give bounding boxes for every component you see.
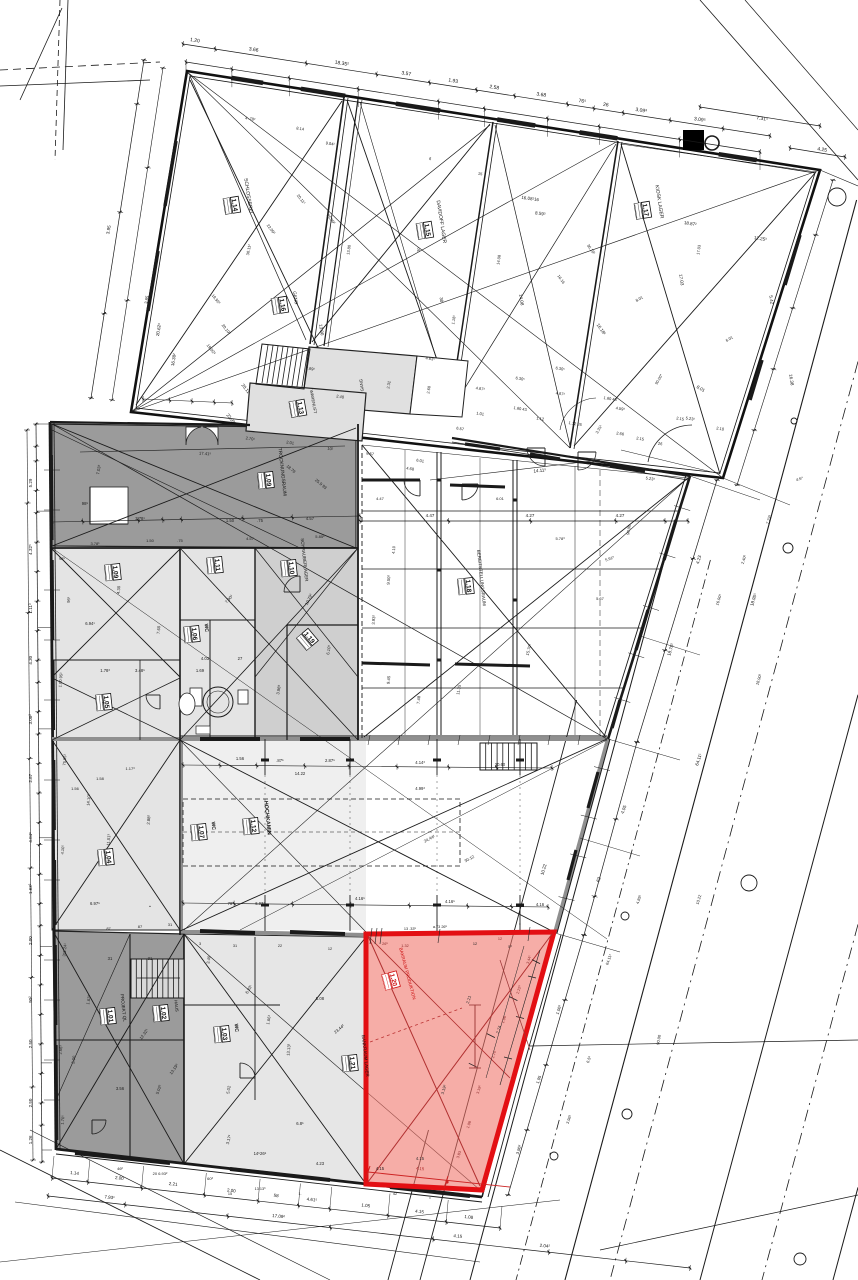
svg-text:7.48: 7.48 (416, 695, 422, 704)
svg-text:1.56: 1.56 (236, 756, 245, 761)
svg-text:9.45: 9.45 (386, 675, 392, 684)
svg-text:60³: 60³ (207, 1176, 213, 1181)
svg-text:WC: WC (210, 821, 217, 830)
svg-text:14.22: 14.22 (295, 771, 306, 776)
svg-text:.75: .75 (177, 538, 183, 543)
svg-text:7.60: 7.60 (156, 625, 162, 634)
svg-text:4.32⁵: 4.32⁵ (28, 544, 33, 555)
svg-text:1.32: 1.32 (401, 944, 408, 948)
svg-text:5.67: 5.67 (596, 596, 605, 601)
svg-text:15: 15 (228, 1192, 232, 1196)
svg-text:2.00: 2.00 (115, 1175, 125, 1181)
svg-text:1.14: 1.14 (70, 1170, 80, 1176)
svg-text:4.23: 4.23 (316, 1161, 325, 1166)
svg-text:2.50: 2.50 (28, 1098, 33, 1107)
svg-text:4.16: 4.16 (536, 902, 545, 907)
svg-text:5.29: 5.29 (28, 478, 33, 487)
svg-text:78: 78 (228, 901, 233, 906)
svg-text:2.21: 2.21 (169, 1181, 179, 1187)
svg-text:4.30: 4.30 (28, 655, 33, 664)
svg-text:3.78¹: 3.78¹ (135, 516, 145, 521)
svg-text:13 .33⁵: 13 .33⁵ (404, 927, 417, 931)
svg-text:1.08: 1.08 (464, 1214, 474, 1220)
svg-text:.87: .87 (105, 926, 111, 931)
svg-text:87: 87 (138, 924, 143, 929)
svg-text:4.03: 4.03 (201, 656, 210, 661)
svg-text:1.50: 1.50 (146, 538, 155, 543)
svg-text:3.93²: 3.93² (371, 614, 377, 625)
svg-text:12: 12 (473, 942, 477, 946)
svg-text:4.57: 4.57 (246, 536, 255, 541)
svg-text:4.16⁵: 4.16⁵ (445, 899, 455, 904)
svg-text:31: 31 (168, 922, 173, 927)
svg-text:13.13³: 13.13³ (255, 1187, 267, 1191)
svg-text:98⁵: 98⁵ (59, 556, 65, 561)
svg-text:1.69: 1.69 (196, 668, 205, 673)
svg-text:12: 12 (328, 947, 332, 951)
svg-text:2.87: 2.87 (28, 773, 33, 782)
svg-text:4.15: 4.15 (453, 1233, 463, 1239)
svg-text:3: 3 (199, 942, 201, 946)
svg-text:4.99³: 4.99³ (415, 786, 425, 791)
svg-text:4.15: 4.15 (415, 1209, 425, 1215)
svg-text:1.11³: 1.11³ (28, 603, 33, 613)
svg-text:3.78¹: 3.78¹ (90, 541, 100, 546)
svg-text:20.60: 20.60 (495, 762, 506, 767)
svg-text:31: 31 (108, 956, 113, 961)
svg-text:a.73 26⁵: a.73 26⁵ (433, 925, 448, 929)
svg-text:2.88²: 2.88² (146, 814, 152, 825)
svg-text:4.15: 4.15 (376, 1166, 385, 1171)
svg-text:4.27: 4.27 (526, 513, 535, 518)
svg-text:2.00: 2.00 (28, 936, 33, 945)
svg-text:4.30: 4.30 (116, 585, 122, 594)
svg-text:.87⁵: .87⁵ (276, 758, 284, 763)
svg-text:2.50: 2.50 (28, 1039, 33, 1048)
svg-text:76⁵: 76⁵ (578, 98, 586, 105)
svg-text:4.15: 4.15 (416, 1156, 425, 1161)
svg-text:90²: 90² (28, 996, 33, 1003)
svg-text:1.78³: 1.78³ (100, 668, 110, 673)
svg-text:17.41⁵: 17.41⁵ (199, 451, 212, 457)
svg-text:98⁵: 98⁵ (82, 501, 89, 506)
svg-text:42: 42 (393, 1192, 397, 1196)
svg-text:6.8⁵: 6.8⁵ (296, 1121, 304, 1126)
svg-text:1.63²: 1.63² (28, 883, 33, 894)
svg-text:WC: WC (203, 623, 210, 632)
svg-text:1.26: 1.26 (28, 1135, 33, 1144)
svg-text:31: 31 (233, 944, 237, 948)
svg-text:6.93²: 6.93² (255, 901, 265, 906)
svg-text:1.50: 1.50 (226, 518, 235, 523)
svg-text:4.27: 4.27 (616, 513, 625, 518)
svg-text:27: 27 (238, 656, 243, 661)
svg-text:4.57: 4.57 (306, 516, 315, 521)
svg-text:3.48⁵: 3.48⁵ (135, 668, 145, 673)
svg-text:2.66³: 2.66³ (58, 1044, 64, 1054)
svg-text:26: 26 (603, 102, 610, 109)
svg-text:11.01³: 11.01³ (106, 833, 112, 846)
svg-text:6.94¹: 6.94¹ (85, 621, 95, 626)
svg-text:.75: .75 (257, 518, 263, 523)
svg-text:14⁵26⁵: 14⁵26⁵ (254, 1151, 267, 1156)
svg-text:1.05: 1.05 (361, 1203, 371, 1209)
svg-text:4.47: 4.47 (376, 496, 385, 501)
svg-text:WC: WC (233, 1023, 240, 1032)
svg-text:9.50²: 9.50² (386, 574, 392, 585)
svg-text:20 6.93²: 20 6.93² (153, 1171, 168, 1176)
svg-text:1.: 1. (298, 1192, 301, 1196)
svg-text:3.56: 3.56 (116, 1086, 125, 1091)
svg-text:1.17³: 1.17³ (125, 766, 135, 771)
svg-text:4.10²: 4.10² (60, 844, 66, 854)
svg-text:5.85⁵: 5.85⁵ (315, 534, 325, 539)
svg-text:1.58: 1.58 (96, 776, 105, 781)
svg-text:1.56: 1.56 (71, 786, 80, 791)
svg-text:4.10: 4.10 (391, 545, 397, 554)
svg-text:22: 22 (278, 944, 282, 948)
svg-text:4.16⁵: 4.16⁵ (355, 896, 365, 901)
svg-text:75.95³: 75.95³ (62, 753, 68, 765)
svg-text:26⁵: 26⁵ (382, 942, 388, 946)
svg-text:3.08²: 3.08² (28, 714, 33, 725)
svg-text:12: 12 (498, 937, 502, 941)
svg-text:4.15: 4.15 (416, 1166, 425, 1172)
svg-text:31: 31 (148, 956, 153, 961)
svg-text:5.08: 5.08 (316, 996, 325, 1001)
svg-text:6.97⁵: 6.97⁵ (90, 901, 100, 906)
svg-text:1.70⁵: 1.70⁵ (60, 1115, 66, 1125)
svg-text:4.84⁵: 4.84⁵ (28, 832, 33, 843)
svg-text:46²: 46² (117, 1166, 123, 1171)
svg-text:4.14³: 4.14³ (415, 760, 425, 765)
svg-text:2.87⁵: 2.87⁵ (325, 758, 335, 763)
svg-text:5.78³: 5.78³ (555, 536, 565, 541)
svg-text:6.01: 6.01 (496, 496, 505, 501)
svg-text:4.47: 4.47 (426, 513, 435, 518)
